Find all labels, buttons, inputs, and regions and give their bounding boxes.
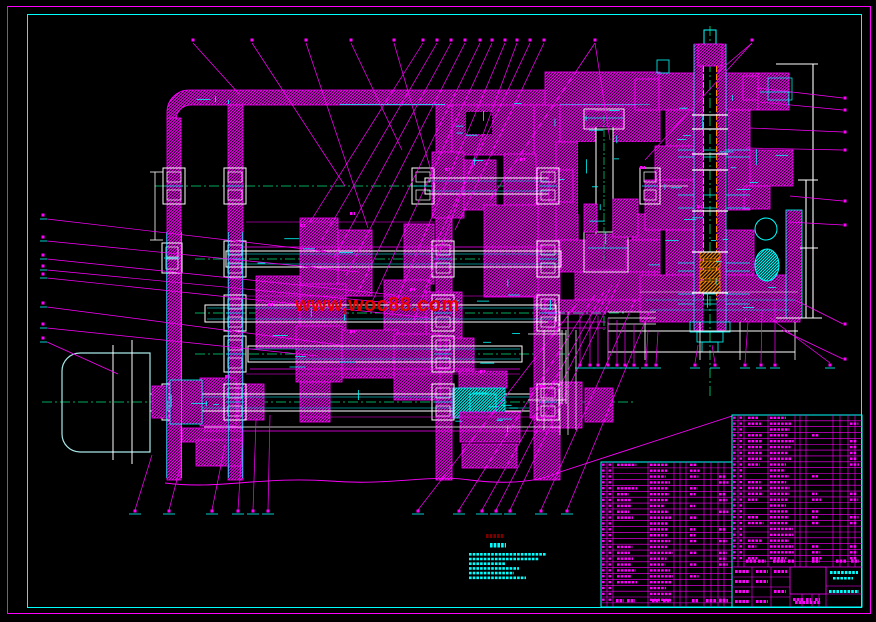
svg-text:www,woc88.com: www,woc88.com (294, 294, 460, 316)
